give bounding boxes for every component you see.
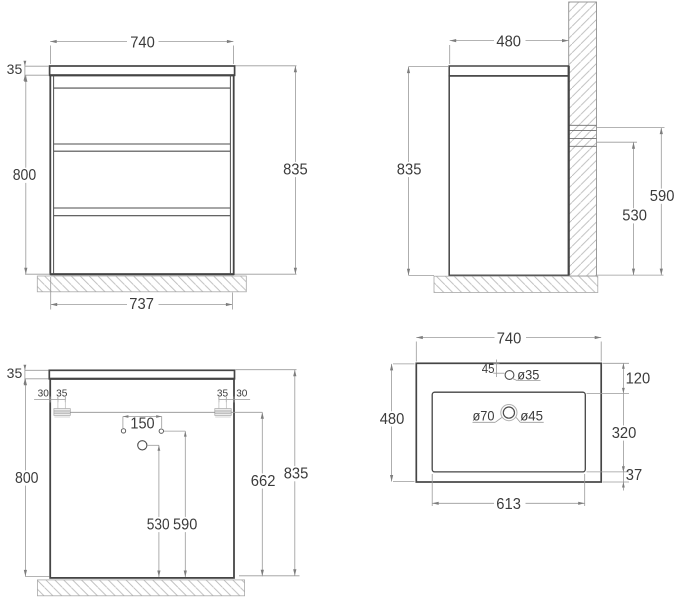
svg-text:35: 35 [7,61,23,77]
svg-text:35: 35 [56,388,67,400]
svg-text:320: 320 [612,425,637,442]
svg-text:835: 835 [397,161,422,178]
svg-text:150: 150 [130,416,154,433]
svg-text:ø45: ø45 [520,408,543,424]
svg-text:530: 530 [147,516,170,533]
svg-text:480: 480 [380,411,405,428]
svg-text:800: 800 [15,470,39,487]
svg-text:662: 662 [251,473,276,490]
svg-text:737: 737 [129,296,154,313]
svg-text:835: 835 [284,466,309,483]
svg-text:ø35: ø35 [517,367,539,383]
svg-text:35: 35 [217,388,228,400]
svg-text:613: 613 [496,496,521,513]
svg-text:480: 480 [496,34,521,51]
svg-text:590: 590 [173,516,197,533]
svg-text:740: 740 [130,35,155,52]
svg-text:30: 30 [38,388,49,400]
svg-text:30: 30 [236,388,247,400]
svg-text:590: 590 [650,188,675,205]
svg-text:45: 45 [482,361,495,376]
svg-text:530: 530 [622,208,647,225]
svg-text:740: 740 [497,331,522,348]
svg-text:37: 37 [626,467,642,484]
svg-text:800: 800 [13,167,37,184]
svg-text:35: 35 [7,365,23,381]
svg-text:120: 120 [626,370,651,387]
svg-text:835: 835 [283,161,308,178]
svg-text:ø70: ø70 [473,408,495,424]
